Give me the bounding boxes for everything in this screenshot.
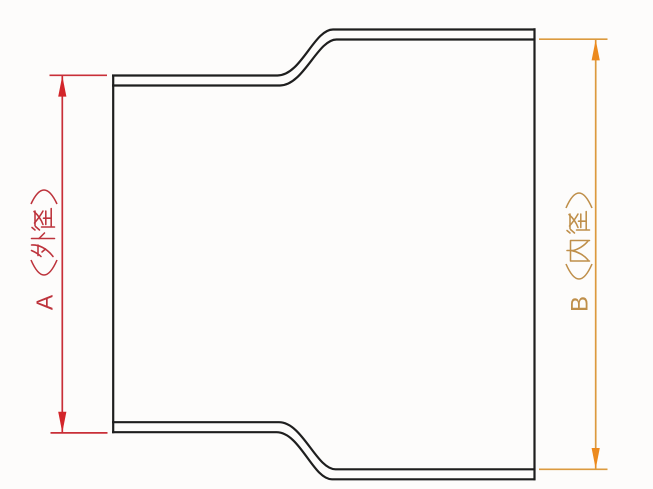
svg-text:A: A (32, 294, 58, 310)
svg-text:B: B (567, 296, 594, 312)
